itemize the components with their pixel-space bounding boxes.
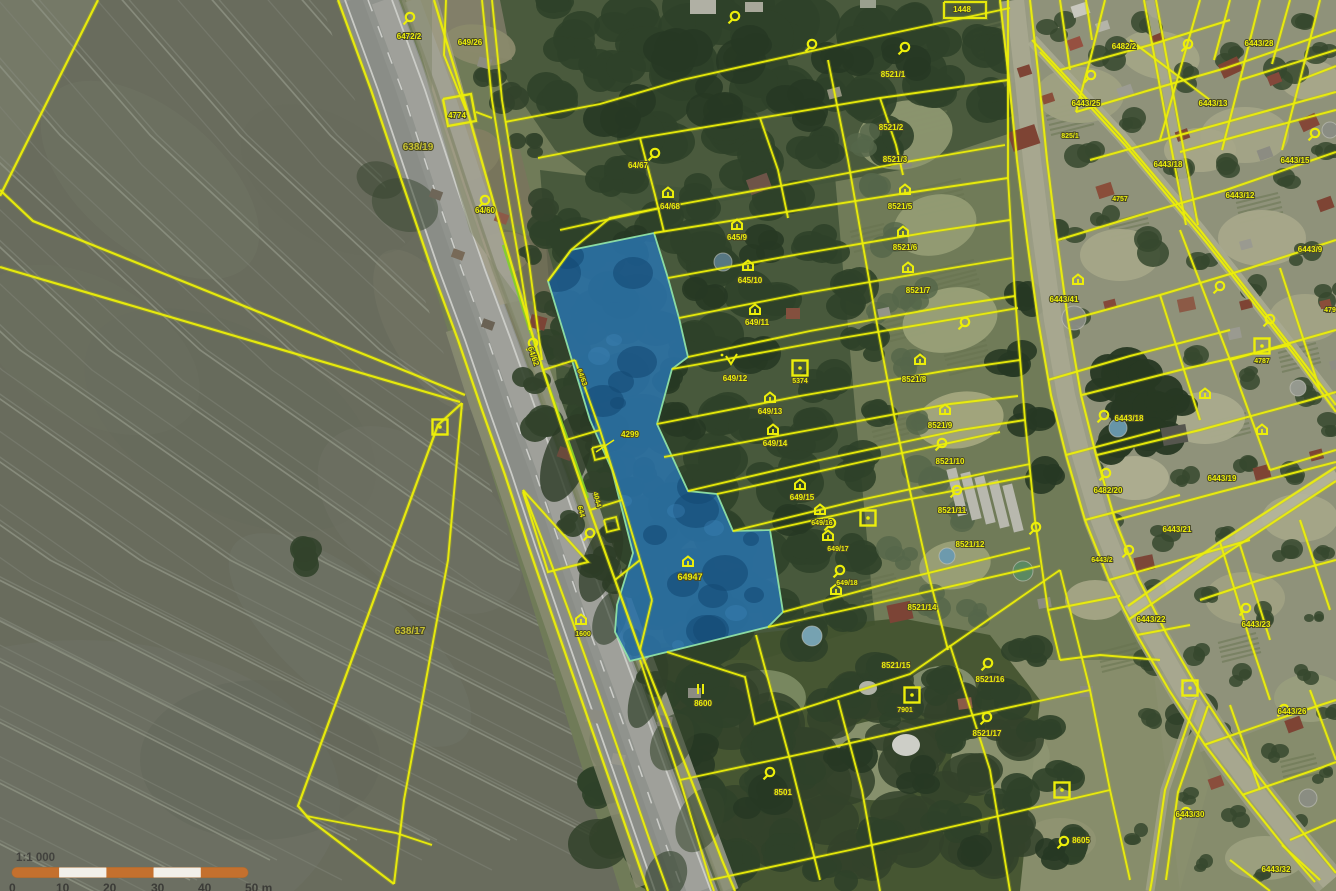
- svg-text:64/67: 64/67: [628, 161, 649, 170]
- svg-text:8521/11: 8521/11: [938, 506, 967, 515]
- svg-text:10: 10: [56, 881, 70, 891]
- svg-text:649/11: 649/11: [745, 318, 770, 327]
- svg-text:645/9: 645/9: [727, 233, 748, 242]
- svg-text:5374: 5374: [792, 378, 808, 385]
- svg-text:6443/18: 6443/18: [1154, 160, 1183, 169]
- svg-text:8521/15: 8521/15: [882, 661, 911, 670]
- svg-text:825/1: 825/1: [1061, 133, 1079, 140]
- svg-text:4774: 4774: [448, 111, 466, 120]
- svg-text:50 m: 50 m: [245, 881, 272, 891]
- svg-text:8521/12: 8521/12: [956, 540, 985, 549]
- svg-text:6443/41: 6443/41: [1050, 295, 1079, 304]
- svg-text:645/10: 645/10: [738, 276, 763, 285]
- svg-text:649/14: 649/14: [763, 439, 788, 448]
- svg-text:8521/8: 8521/8: [902, 375, 927, 384]
- svg-text:20: 20: [103, 881, 117, 891]
- svg-text:6482/20: 6482/20: [1094, 486, 1123, 495]
- svg-text:638/19: 638/19: [403, 142, 434, 153]
- svg-text:649/16: 649/16: [811, 520, 833, 527]
- svg-text:6443/26: 6443/26: [1278, 707, 1307, 716]
- svg-text:1448: 1448: [953, 5, 971, 14]
- svg-text:6443/9: 6443/9: [1298, 245, 1323, 254]
- svg-text:6443/12: 6443/12: [1226, 191, 1255, 200]
- svg-text:8521/2: 8521/2: [879, 123, 904, 132]
- svg-text:64/68: 64/68: [660, 202, 681, 211]
- svg-text:6443/21: 6443/21: [1163, 525, 1192, 534]
- svg-text:8521/1: 8521/1: [881, 70, 906, 79]
- svg-text:6443/19: 6443/19: [1208, 474, 1237, 483]
- svg-text:4787: 4787: [1254, 358, 1270, 365]
- svg-text:649/18: 649/18: [836, 580, 858, 587]
- svg-text:64/60: 64/60: [475, 206, 496, 215]
- svg-text:6482/2: 6482/2: [1112, 42, 1137, 51]
- svg-text:1600: 1600: [575, 631, 591, 638]
- svg-text:8605: 8605: [1072, 836, 1090, 845]
- svg-text:8521/9: 8521/9: [928, 421, 953, 430]
- svg-text:0: 0: [9, 881, 16, 891]
- svg-text:30: 30: [151, 881, 165, 891]
- svg-text:649/12: 649/12: [723, 374, 748, 383]
- svg-text:8600: 8600: [694, 699, 712, 708]
- svg-text:479: 479: [1324, 307, 1336, 314]
- svg-text:6443/18: 6443/18: [1115, 414, 1144, 423]
- svg-text:8521/6: 8521/6: [893, 243, 918, 252]
- svg-text:6443/22: 6443/22: [1137, 615, 1166, 624]
- svg-text:6443/25: 6443/25: [1072, 99, 1101, 108]
- svg-text:6443/2: 6443/2: [1091, 557, 1113, 564]
- svg-text:649/15: 649/15: [790, 493, 815, 502]
- svg-text:8501: 8501: [774, 788, 792, 797]
- svg-text:649/13: 649/13: [758, 407, 783, 416]
- svg-text:8521/10: 8521/10: [936, 457, 965, 466]
- svg-text:8521/14: 8521/14: [908, 603, 937, 612]
- svg-text:8521/7: 8521/7: [906, 286, 931, 295]
- svg-text:6443/32: 6443/32: [1262, 865, 1291, 874]
- svg-text:6443/28: 6443/28: [1245, 39, 1274, 48]
- svg-text:7901: 7901: [897, 707, 913, 714]
- svg-text:8521/16: 8521/16: [976, 675, 1005, 684]
- svg-text:6443/15: 6443/15: [1281, 156, 1310, 165]
- svg-text:649/17: 649/17: [827, 546, 849, 553]
- svg-text:4757: 4757: [1112, 196, 1128, 203]
- svg-text:649/26: 649/26: [458, 38, 483, 47]
- svg-text:6443/30: 6443/30: [1176, 810, 1205, 819]
- svg-text:64947: 64947: [677, 572, 702, 582]
- svg-text:8521/17: 8521/17: [973, 729, 1002, 738]
- svg-text:6443/13: 6443/13: [1199, 99, 1228, 108]
- svg-text:6472/2: 6472/2: [397, 32, 422, 41]
- svg-text:1:1 000: 1:1 000: [16, 852, 55, 864]
- svg-text:638/17: 638/17: [395, 626, 426, 637]
- svg-text:40: 40: [198, 881, 212, 891]
- svg-text:4299: 4299: [621, 430, 639, 439]
- svg-text:8521/5: 8521/5: [888, 202, 913, 211]
- svg-text:6443/23: 6443/23: [1242, 620, 1271, 629]
- svg-text:8521/3: 8521/3: [883, 155, 908, 164]
